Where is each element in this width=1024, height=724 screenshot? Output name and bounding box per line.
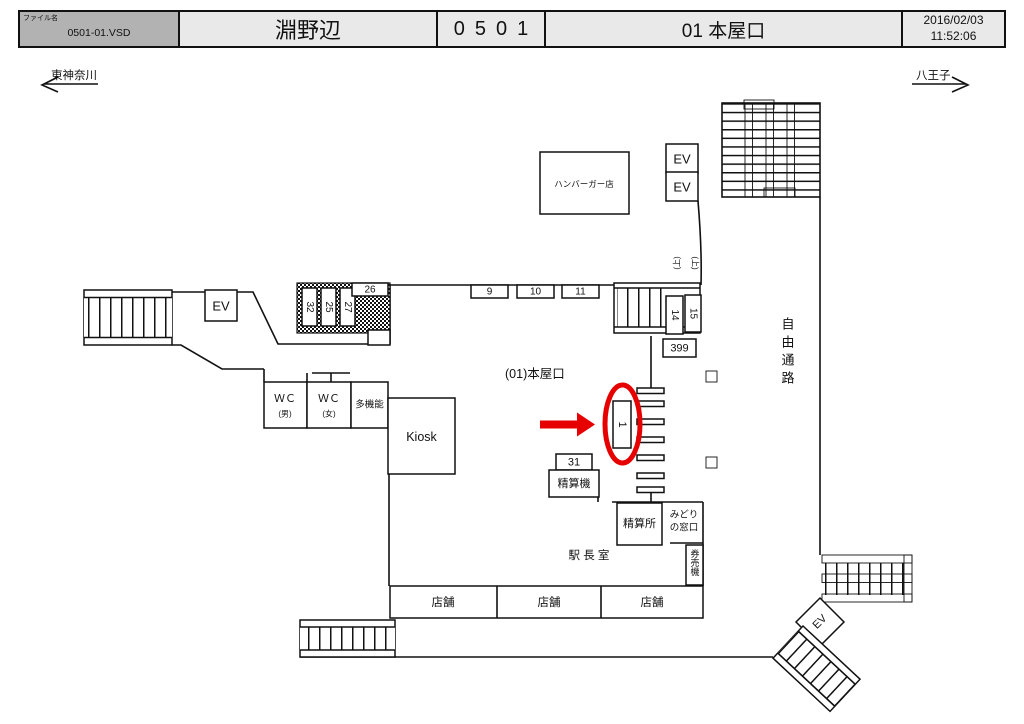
direction-left-label: 東神奈川: [51, 68, 97, 82]
ad-number-14: 14: [669, 309, 680, 321]
stairs-south-west: [300, 620, 395, 657]
midori-window-label-2: の窓口: [670, 522, 699, 534]
file-name-value: 0501-01.VSD: [67, 27, 130, 39]
floor-plan-drawing: 東神奈川 八王子 ハンバーガー店 EV: [0, 0, 1024, 724]
ad-number-26: 26: [364, 285, 376, 296]
wc-area: ＷＣ (男) ＷＣ (女) 多機能: [264, 382, 388, 428]
stairs-gate: 14 15 (上) (上): [614, 256, 701, 334]
station-code: 0501: [454, 18, 539, 41]
station-map-screen: 東神奈川 八王子 ハンバーガー店 EV: [0, 0, 1024, 724]
shop-label: 店舗: [432, 595, 455, 609]
elevator-label: EV: [673, 152, 691, 167]
ad-number-9: 9: [487, 287, 493, 298]
multi-function-wc-label: 多機能: [355, 399, 384, 411]
escalator-south-east: [822, 555, 912, 602]
ad-boxes-ceiling: 9 10 11: [471, 285, 599, 298]
entrance-name-label: (01)本屋口: [505, 367, 565, 381]
wc-female-sub: (女): [322, 409, 336, 419]
pillar: [706, 371, 717, 382]
title-bar: ファイル名 0501-01.VSD 淵野辺 0501 01 本屋口 2016/0…: [18, 10, 1006, 48]
kiosk-room: Kiosk: [388, 398, 455, 474]
burger-shop-label: ハンバーガー店: [554, 179, 614, 189]
elevator-top-2: EV: [666, 172, 698, 201]
fare-adjustment-machine: 31 精算機: [549, 454, 599, 497]
highlighted-ad-sign: 1: [613, 401, 631, 448]
stairs-north: [722, 100, 820, 197]
pillar: [706, 457, 717, 468]
shop-row: 店舗 店舗 店舗: [390, 586, 703, 618]
ad-block-north: 32 25 27 26: [297, 283, 390, 345]
stairs-south-east: [773, 626, 860, 711]
elevator-top-1: EV: [666, 144, 698, 173]
ad-number-27: 27: [342, 301, 353, 313]
file-name-label: ファイル名: [23, 13, 58, 23]
station-name: 淵野辺: [275, 13, 341, 45]
ad-number-10: 10: [530, 287, 542, 298]
direction-right-label: 八王子: [916, 69, 951, 82]
direction-right: 八王子: [912, 69, 968, 92]
direction-left: 東神奈川: [42, 68, 98, 92]
fare-adjustment-office-label: 精算所: [623, 516, 656, 530]
elevator-label: EV: [673, 180, 691, 195]
elevator-west: EV: [205, 290, 237, 321]
ad-number-32: 32: [304, 301, 315, 313]
shop-label: 店舗: [641, 595, 664, 609]
ad-box-399: 399: [663, 339, 696, 357]
wall-passage-left: [698, 201, 701, 285]
station-master-office-label: 駅 長 室: [569, 548, 610, 562]
ad-number-15: 15: [688, 308, 699, 320]
ad-number-399: 399: [670, 343, 688, 355]
station-name-cell: 淵野辺: [180, 12, 438, 46]
stairs-up-label: (上): [691, 256, 700, 270]
stairs-up-label: (上): [673, 256, 682, 270]
highlight-arrow-icon: [540, 413, 595, 437]
burger-shop-room: ハンバーガー店: [540, 152, 629, 214]
wall-wc-partition: [307, 373, 350, 382]
map-title: 01 本屋口: [682, 16, 765, 43]
station-code-cell: 0501: [438, 12, 546, 46]
ticket-gates: [637, 388, 664, 493]
free-passage-label: 自由通路: [780, 317, 795, 389]
ad-number-1: 1: [616, 421, 628, 427]
map-title-cell: 01 本屋口: [546, 12, 903, 46]
file-name-cell: ファイル名 0501-01.VSD: [20, 12, 180, 46]
shop-label: 店舗: [538, 595, 561, 609]
wc-male-label: ＷＣ: [274, 393, 296, 405]
wc-female-label: ＷＣ: [318, 393, 340, 405]
office-area: 精算所 みどり の窓口 券売機 駅 長 室: [569, 503, 703, 585]
datetime-cell: 2016/02/03 11:52:06: [903, 12, 1004, 46]
fare-adjustment-machine-label: 精算機: [558, 476, 591, 490]
wall-lower-left: [172, 345, 264, 382]
ad-number-25: 25: [323, 301, 334, 313]
stairs-west: [84, 290, 172, 345]
ticket-machines-label: 券売機: [690, 548, 700, 577]
midori-window-label-1: みどり: [670, 510, 699, 521]
elevator-label: EV: [212, 299, 230, 314]
ad-number-11: 11: [575, 287, 586, 298]
date-value: 2016/02/03: [923, 13, 983, 29]
wc-male-sub: (男): [278, 410, 292, 419]
time-value: 11:52:06: [931, 29, 977, 45]
kiosk-label: Kiosk: [406, 430, 437, 444]
ad-number-31: 31: [568, 457, 580, 469]
